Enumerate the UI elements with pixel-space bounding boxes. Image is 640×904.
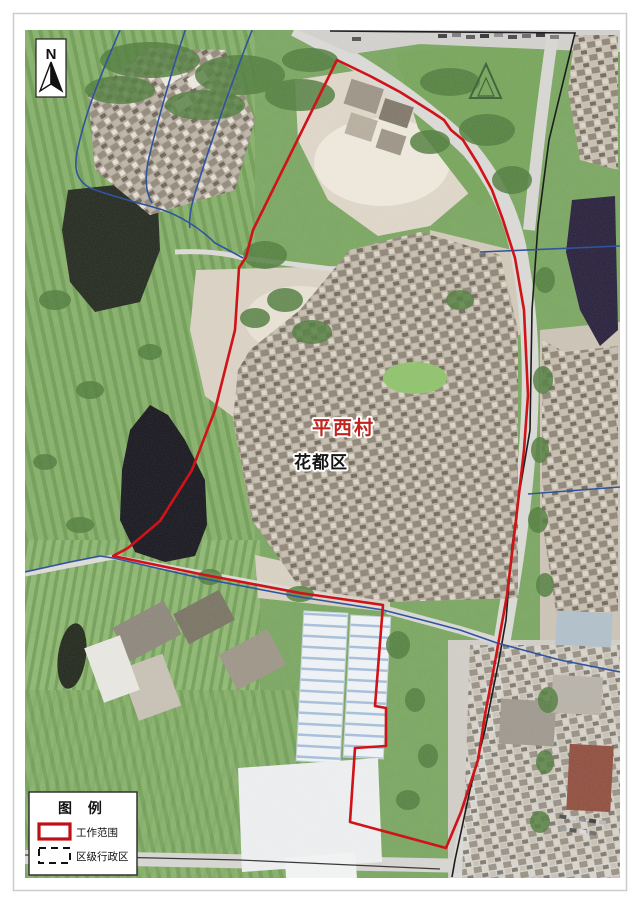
village-label: 平西村 [312,416,375,439]
legend-item-label: 工作范围 [76,826,118,839]
north-arrow: N [36,39,66,97]
map-image: 平西村 花都区 N 图 例 工作范围 区级行政区 [0,0,640,904]
district-label: 花都区 [294,452,348,472]
work-area-swatch [39,824,70,839]
satellite-imagery: 平西村 花都区 [25,25,620,878]
legend: 图 例 工作范围 区级行政区 [29,792,137,875]
satellite-map-page: 平西村 花都区 N 图 例 工作范围 区级行政区 [0,0,640,904]
north-label: N [46,46,57,63]
legend-title: 图 例 [58,800,108,816]
legend-item-label: 区级行政区 [76,850,129,863]
district-swatch [39,848,70,863]
